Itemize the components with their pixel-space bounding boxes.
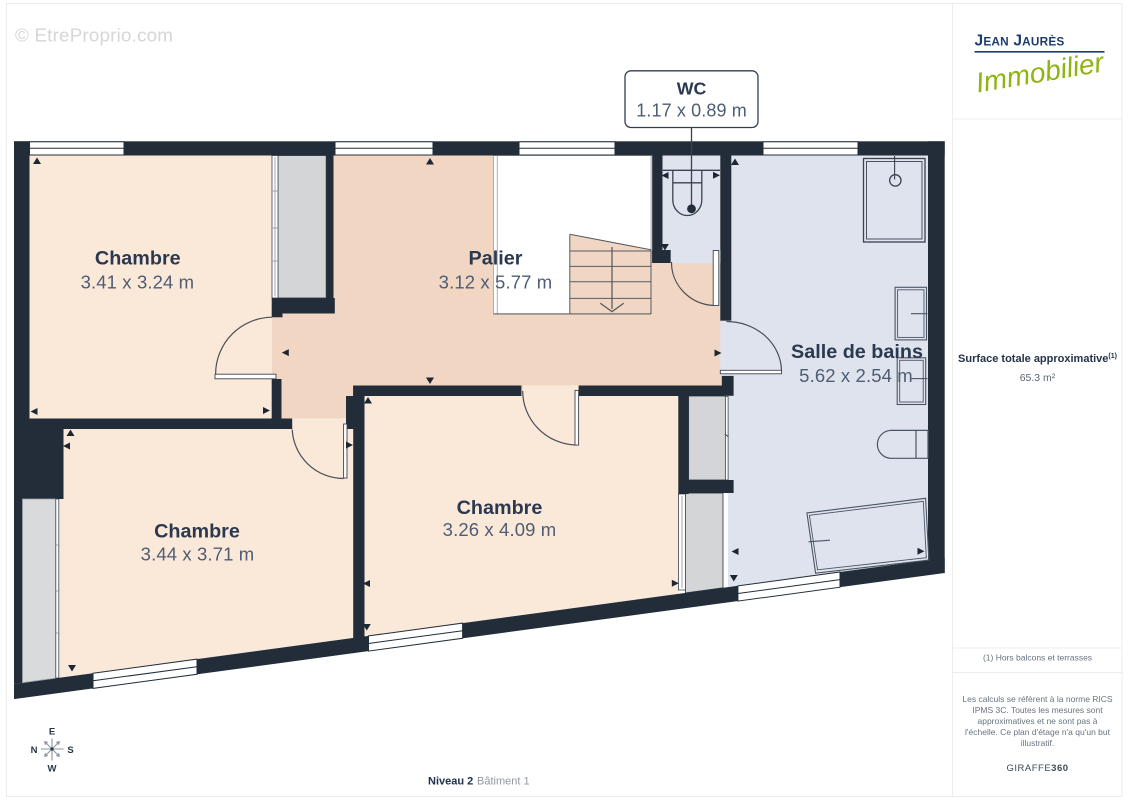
- svg-text:IPMS 3C. Toutes les mesures so: IPMS 3C. Toutes les mesures sont: [972, 705, 1103, 715]
- svg-text:© EtreProprio.com: © EtreProprio.com: [15, 25, 173, 46]
- svg-text:1.17 x 0.89 m: 1.17 x 0.89 m: [636, 101, 747, 121]
- svg-text:Surface totale approximative(1: Surface totale approximative(1): [958, 353, 1117, 365]
- svg-text:E: E: [49, 727, 55, 738]
- svg-text:l'échelle. Ce plan d'étage n'a: l'échelle. Ce plan d'étage n'a qu'un but: [965, 727, 1111, 737]
- svg-text:illustratif.: illustratif.: [1021, 738, 1055, 748]
- svg-text:S: S: [67, 745, 73, 756]
- svg-text:JEAN JAURÈS: JEAN JAURÈS: [975, 33, 1065, 50]
- svg-text:3.12 x 5.77 m: 3.12 x 5.77 m: [439, 272, 553, 293]
- svg-text:N: N: [31, 745, 38, 756]
- svg-text:3.44 x 3.71 m: 3.44 x 3.71 m: [141, 544, 255, 565]
- svg-text:Chambre: Chambre: [457, 497, 543, 519]
- svg-text:GIRAFFE360: GIRAFFE360: [1006, 763, 1068, 774]
- svg-text:Salle de bains: Salle de bains: [791, 341, 923, 363]
- svg-text:W: W: [48, 764, 57, 775]
- svg-text:WC: WC: [677, 79, 707, 99]
- svg-text:Chambre: Chambre: [95, 248, 181, 270]
- svg-text:approximatives et ne sont pas: approximatives et ne sont pas à: [977, 716, 1097, 726]
- svg-text:Bâtiment 1: Bâtiment 1: [477, 776, 530, 788]
- svg-text:(1) Hors balcons et terrasses: (1) Hors balcons et terrasses: [983, 653, 1092, 663]
- svg-text:Palier: Palier: [469, 248, 523, 270]
- svg-text:3.41 x 3.24 m: 3.41 x 3.24 m: [81, 272, 195, 293]
- svg-text:Les calculs se réfèrent à la n: Les calculs se réfèrent à la norme RICS: [962, 694, 1113, 704]
- svg-text:Niveau 2: Niveau 2: [428, 776, 473, 788]
- svg-text:65.3 m²: 65.3 m²: [1020, 372, 1056, 384]
- svg-text:3.26 x 4.09 m: 3.26 x 4.09 m: [443, 519, 557, 540]
- svg-text:5.62 x 2.54 m: 5.62 x 2.54 m: [799, 365, 913, 386]
- svg-text:Chambre: Chambre: [154, 521, 240, 543]
